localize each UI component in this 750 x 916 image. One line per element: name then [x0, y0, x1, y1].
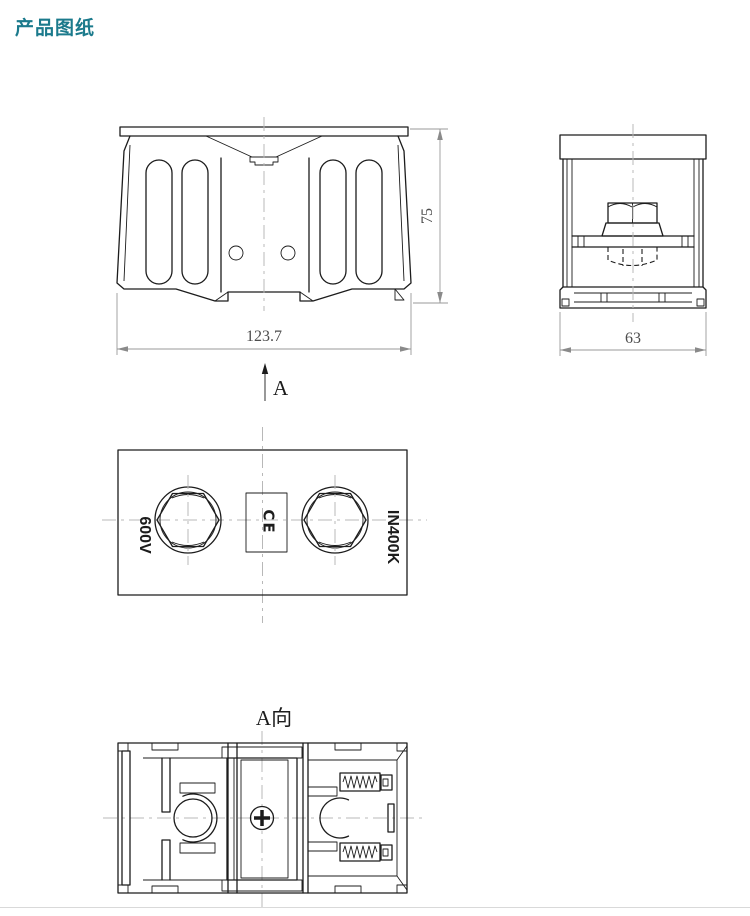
side-width-text: 63	[625, 330, 641, 347]
page-title: 产品图纸	[15, 13, 95, 40]
voltage-marking: 600V	[136, 516, 153, 554]
current-marking: IN400K	[384, 510, 401, 565]
section-view-label: A向	[256, 706, 292, 730]
top-view-drawing: CE 600V IN400K	[100, 435, 440, 625]
front-height-dimension: 75	[410, 129, 448, 303]
front-view-drawing: 123.7 75	[100, 105, 460, 365]
bottom-spring	[340, 843, 392, 861]
front-width-text: 123.7	[246, 328, 282, 345]
front-width-dimension: 123.7	[117, 293, 411, 355]
footer-divider	[0, 907, 750, 908]
section-arrow-head-icon	[262, 363, 268, 374]
side-view-drawing: 63	[545, 110, 725, 370]
ce-marking: CE	[260, 509, 278, 534]
front-height-text: 75	[419, 208, 436, 224]
section-arrow: A	[245, 357, 335, 405]
section-arrow-label: A	[273, 376, 289, 400]
section-view-drawing: A向	[90, 685, 460, 915]
top-spring	[340, 773, 392, 791]
product-drawing-page: 产品图纸	[0, 0, 750, 916]
